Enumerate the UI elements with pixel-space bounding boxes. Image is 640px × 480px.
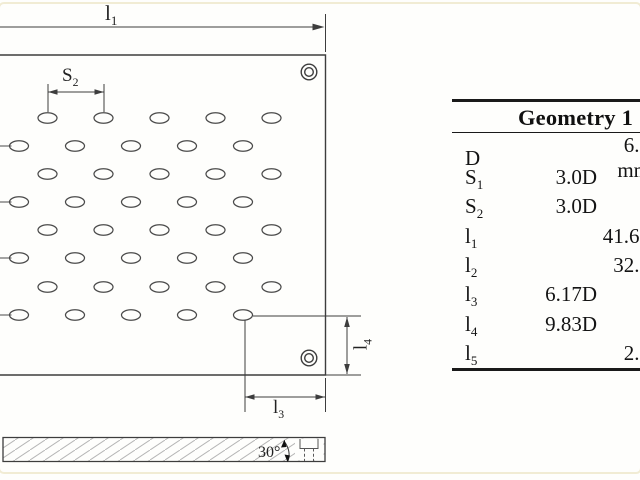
- param-label: l2: [465, 253, 528, 278]
- hole: [66, 197, 85, 207]
- hole: [234, 197, 253, 207]
- arrowhead: [344, 317, 350, 327]
- arrowhead: [313, 24, 325, 31]
- hole: [262, 113, 281, 123]
- hole: [178, 141, 197, 151]
- table-title: Geometry 1: [452, 102, 640, 132]
- hole: [38, 169, 57, 179]
- hole: [10, 310, 29, 320]
- hole-pattern: [0, 113, 281, 320]
- bolt-hole-bottom-right: [301, 350, 317, 366]
- hole: [66, 253, 85, 263]
- hole: [122, 253, 141, 263]
- table-row: l49.83D: [452, 310, 640, 339]
- dim-label-l3: l3: [273, 398, 284, 417]
- table-row: S23.0D: [452, 192, 640, 221]
- hole: [94, 282, 113, 292]
- arrowhead: [316, 394, 326, 400]
- counterbore-clear: [295, 439, 324, 461]
- param-label: S1: [465, 165, 528, 190]
- param-label: l3: [465, 282, 528, 307]
- hole: [122, 141, 141, 151]
- hole: [206, 169, 225, 179]
- hole: [10, 141, 29, 151]
- hole: [38, 113, 57, 123]
- param-label: S2: [465, 194, 528, 219]
- hole: [150, 225, 169, 235]
- hole: [150, 282, 169, 292]
- hole: [206, 225, 225, 235]
- table-row: l232.0: [452, 251, 640, 280]
- arrowhead: [48, 89, 58, 95]
- value-absolute: 32.0: [597, 253, 640, 278]
- hole: [10, 253, 29, 263]
- hole: [150, 169, 169, 179]
- dim-label-l1: l1: [105, 3, 117, 24]
- arrowhead: [344, 364, 350, 374]
- hole: [178, 253, 197, 263]
- arrowhead: [95, 89, 105, 95]
- value-absolute: 6.0 mm: [597, 133, 640, 183]
- hole: [66, 141, 85, 151]
- hole: [122, 310, 141, 320]
- dim-label-angle: 30°: [258, 445, 280, 461]
- bolt-hole-top-right: [301, 64, 317, 80]
- param-label: l5: [465, 341, 528, 366]
- value-relative: 3.0D: [528, 165, 597, 190]
- table-row: D6.0 mm: [452, 133, 640, 162]
- hole: [234, 141, 253, 151]
- value-relative: 9.83D: [528, 312, 597, 337]
- table-rule-bottom: [452, 368, 640, 371]
- value-relative: 3.0D: [528, 194, 597, 219]
- value-relative: 6.17D: [528, 282, 597, 307]
- dim-label-s2: S2: [62, 66, 78, 85]
- hole: [122, 197, 141, 207]
- hole: [38, 225, 57, 235]
- table-row: l141.67: [452, 221, 640, 250]
- hole: [94, 113, 113, 123]
- table-row: l36.17D: [452, 280, 640, 309]
- hole: [94, 169, 113, 179]
- dim-label-l4: l4: [352, 328, 371, 362]
- geometry-table: Geometry 1 D6.0 mmS13.0DS23.0Dl141.67l23…: [452, 99, 640, 371]
- hole: [262, 225, 281, 235]
- dim-l3: [245, 320, 326, 412]
- hole: [262, 282, 281, 292]
- arrowhead: [245, 394, 255, 400]
- hole: [10, 197, 29, 207]
- hole: [178, 197, 197, 207]
- param-label: l4: [465, 312, 528, 337]
- hole: [66, 310, 85, 320]
- hole: [206, 282, 225, 292]
- hole: [234, 253, 253, 263]
- dim-l1: [0, 14, 326, 52]
- hole: [206, 113, 225, 123]
- hole: [94, 225, 113, 235]
- param-label: l1: [465, 224, 528, 249]
- hole: [178, 310, 197, 320]
- value-absolute: 41.67: [597, 224, 640, 249]
- plate-outline: [0, 55, 326, 375]
- table-body: D6.0 mmS13.0DS23.0Dl141.67l232.0l36.17Dl…: [452, 133, 640, 368]
- hole: [262, 169, 281, 179]
- value-absolute: 2.5: [597, 341, 640, 366]
- table-row: l52.5: [452, 339, 640, 368]
- hole: [38, 282, 57, 292]
- hole: [234, 310, 253, 320]
- hole: [150, 113, 169, 123]
